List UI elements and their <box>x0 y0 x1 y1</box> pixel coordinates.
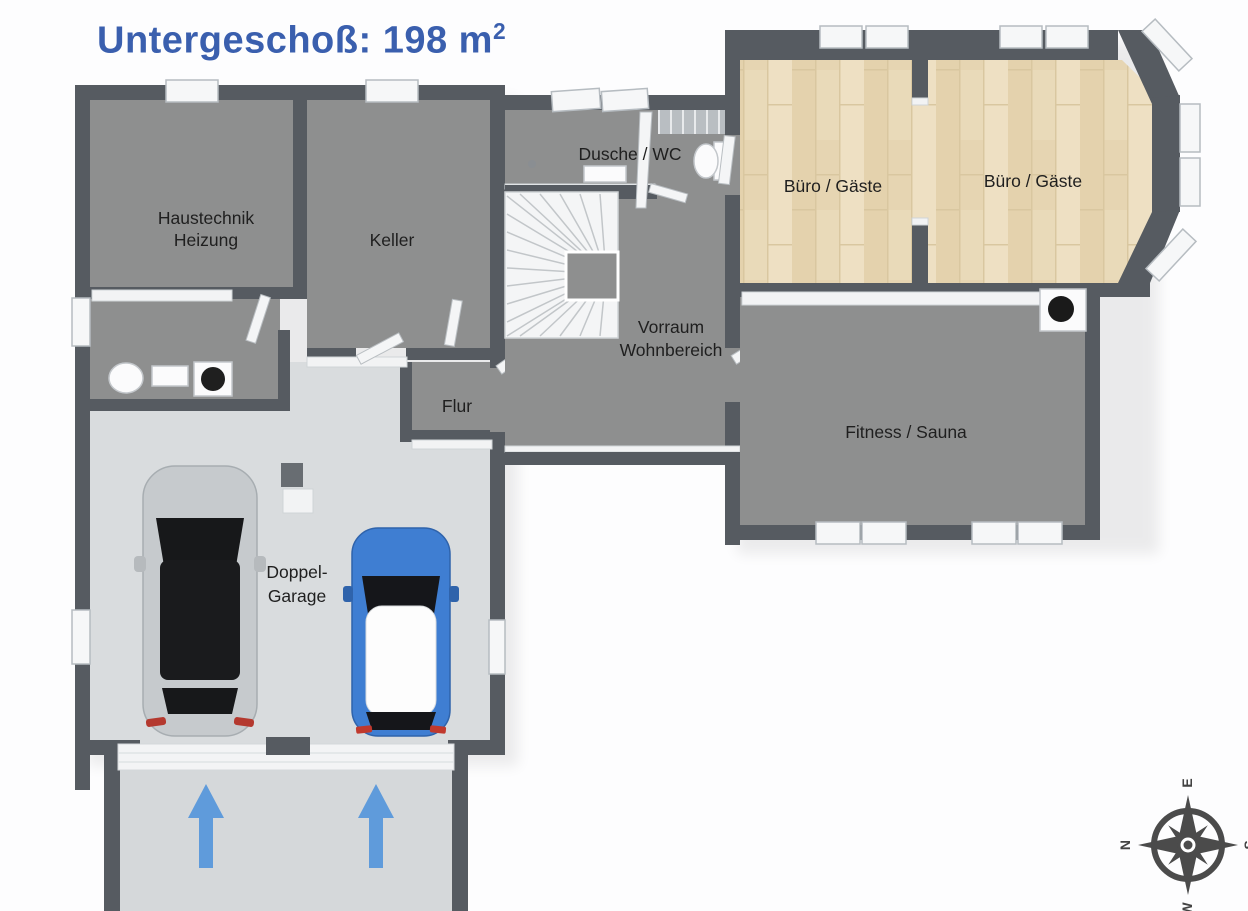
floor-plan-page: Untergeschoß: 198 m2 <box>0 0 1248 911</box>
car-rear-window <box>366 712 436 730</box>
window <box>489 620 505 674</box>
silver-car <box>134 466 266 736</box>
wall <box>1085 290 1100 540</box>
car-mirror <box>254 556 266 572</box>
wall-office-partition <box>912 224 928 283</box>
wall <box>725 402 740 545</box>
wall-sill <box>742 292 1075 305</box>
stair-landing-notch <box>566 252 618 300</box>
compass-east-label: E <box>1179 778 1195 787</box>
room-label-fitness: Fitness / Sauna <box>845 422 967 442</box>
fitness-floor <box>740 297 1085 525</box>
wall <box>104 752 120 911</box>
wall <box>75 85 90 790</box>
driveway-floor <box>120 770 452 911</box>
window <box>972 522 1016 544</box>
flur-passage-floor <box>490 368 505 432</box>
wall <box>505 452 740 465</box>
wall <box>293 100 307 299</box>
wall-bay-side <box>1152 95 1180 212</box>
chimney <box>281 463 303 487</box>
window <box>72 298 90 346</box>
car-roof-glass <box>160 560 240 680</box>
room-label-haustechnik-line1: Haustechnik <box>158 208 255 228</box>
sauna-fixture-drum <box>1048 296 1074 322</box>
floor-drain-icon <box>528 160 536 168</box>
toilet-icon <box>109 363 143 393</box>
keller-floor <box>307 100 490 348</box>
window <box>1000 26 1042 48</box>
floor-plan-drawing: E S W N Haustechnik Heizung Keller Dusch… <box>0 0 1248 911</box>
window <box>820 26 862 48</box>
wall-sill <box>307 357 407 367</box>
car-white-roof <box>366 606 436 716</box>
office-wood-floor <box>740 60 1163 283</box>
room-label-flur: Flur <box>442 396 472 416</box>
wall <box>490 85 505 368</box>
page-title: Untergeschoß: 198 m2 <box>97 18 506 63</box>
wall <box>452 752 468 911</box>
wall-sill <box>505 446 740 452</box>
car-mirror <box>343 586 353 602</box>
room-label-haustechnik-line2: Heizung <box>174 230 238 250</box>
window <box>1018 522 1062 544</box>
door-frame <box>912 98 928 105</box>
room-label-dusche-wc: Dusche / WC <box>578 144 681 164</box>
wall-sill <box>412 440 492 449</box>
stairs <box>505 192 618 338</box>
toilet-icon <box>694 144 718 178</box>
compass-rose: E S W N <box>1117 778 1248 911</box>
wall-sill <box>92 290 232 301</box>
car-mirror <box>134 556 146 572</box>
room-label-garage-line2: Garage <box>268 586 326 606</box>
car-windshield <box>156 518 244 566</box>
room-label-vorraum-line1: Vorraum <box>638 317 704 337</box>
room-label-garage-line1: Doppel- <box>266 562 327 582</box>
wall-office-partition <box>912 30 928 100</box>
chimney-base <box>283 489 313 513</box>
bay-window <box>1180 104 1200 152</box>
window <box>551 88 600 111</box>
window <box>366 80 418 102</box>
wall <box>90 399 290 411</box>
car-rear-window <box>162 688 238 714</box>
wall <box>725 195 740 348</box>
window <box>72 610 90 664</box>
wall <box>406 348 490 360</box>
wall <box>75 85 505 100</box>
sink-icon <box>152 366 188 386</box>
compass-south-label: S <box>1241 840 1248 849</box>
window <box>166 80 218 102</box>
window <box>601 88 648 111</box>
window <box>816 522 860 544</box>
compass-west-label: W <box>1179 902 1195 911</box>
room-label-vorraum-line2: Wohnbereich <box>620 340 723 360</box>
wall <box>278 330 290 411</box>
bay-window <box>1180 158 1200 206</box>
haustechnik-floor <box>90 100 293 287</box>
garage-door-pillar <box>266 737 310 755</box>
washer-drum-icon <box>201 367 225 391</box>
room-label-buero1: Büro / Gäste <box>784 176 882 196</box>
window <box>862 522 906 544</box>
page-title-superscript: 2 <box>493 18 506 44</box>
left-wing <box>72 80 539 790</box>
driveway-area <box>104 737 468 911</box>
door-frame <box>912 218 928 225</box>
room-label-keller: Keller <box>370 230 415 250</box>
room-label-buero2: Büro / Gäste <box>984 171 1082 191</box>
blue-car <box>343 528 459 736</box>
car-mirror <box>449 586 459 602</box>
wall <box>490 432 505 755</box>
tiled-wall-band <box>658 110 726 134</box>
shower-tray <box>584 166 626 182</box>
window <box>1046 26 1088 48</box>
compass-north-label: N <box>1117 840 1133 850</box>
window <box>866 26 908 48</box>
page-title-text: Untergeschoß: 198 m <box>97 20 493 62</box>
